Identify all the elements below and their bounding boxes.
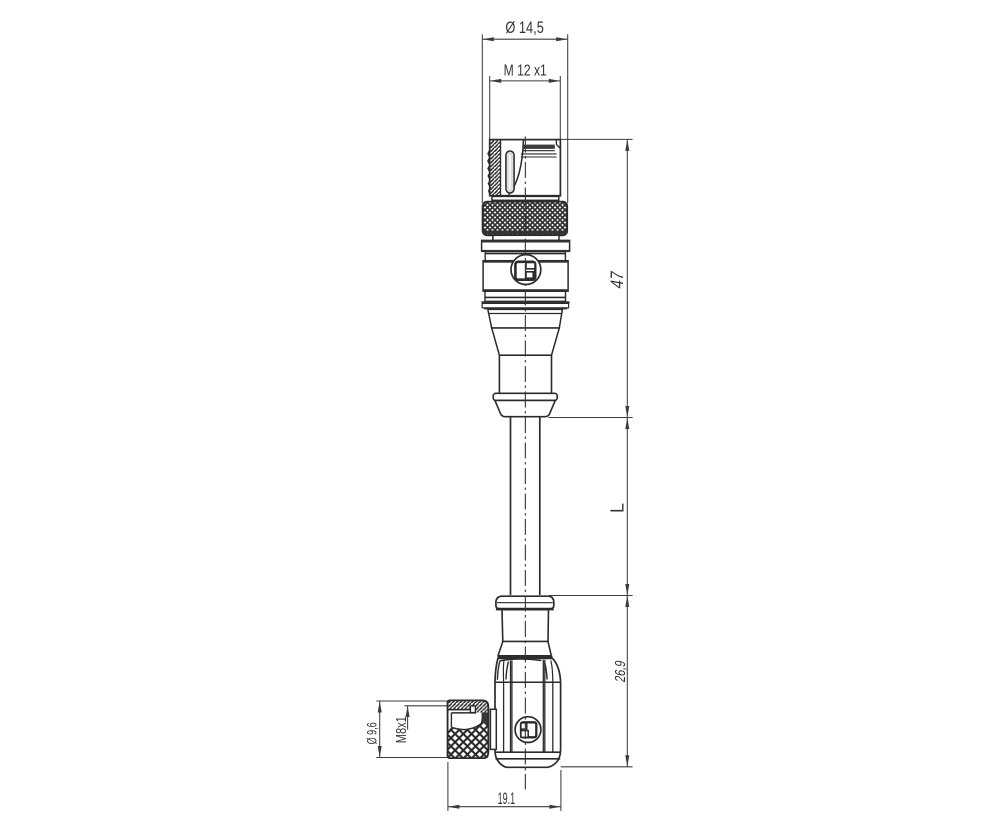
- svg-text:26,9: 26,9: [613, 659, 629, 683]
- svg-text:Ø 14,5: Ø 14,5: [505, 19, 544, 37]
- svg-text:M8x1: M8x1: [393, 716, 410, 743]
- svg-text:L: L: [608, 503, 628, 513]
- svg-text:19.1: 19.1: [498, 790, 516, 808]
- svg-text:M 12 x1: M 12 x1: [504, 63, 547, 80]
- svg-text:47: 47: [607, 270, 627, 290]
- svg-text:Ø 9,6: Ø 9,6: [364, 722, 379, 744]
